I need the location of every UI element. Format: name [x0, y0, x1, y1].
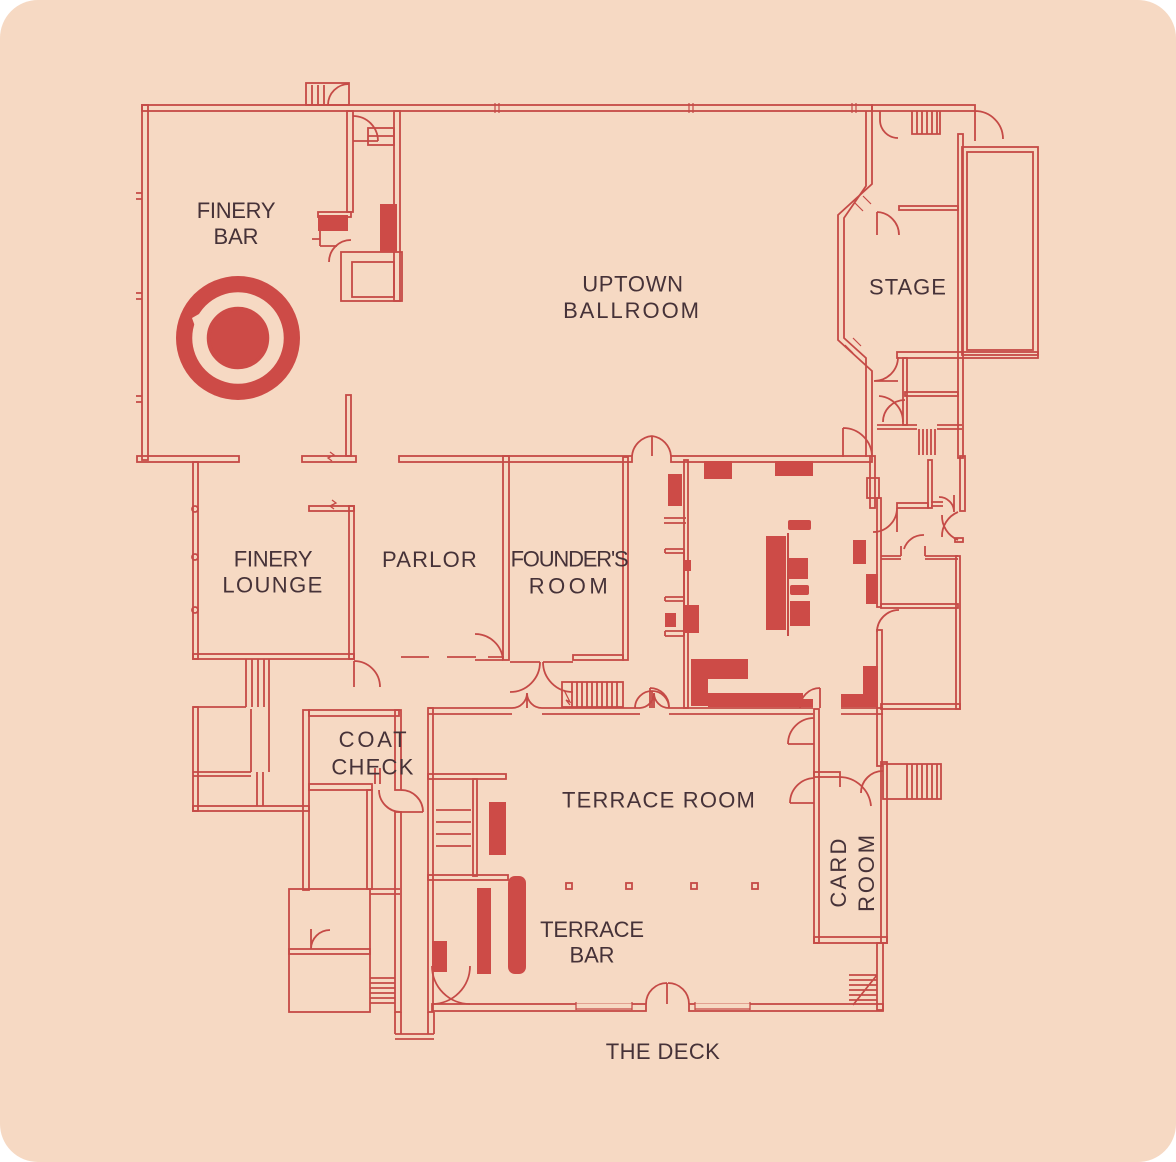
svg-text:TERRACE ROOM: TERRACE ROOM	[562, 788, 756, 813]
svg-text:BAR: BAR	[570, 943, 615, 968]
svg-text:BALLROOM: BALLROOM	[563, 298, 701, 323]
svg-text:FOUNDER'S: FOUNDER'S	[511, 547, 628, 572]
svg-text:CHECK: CHECK	[331, 755, 414, 780]
svg-text:LOUNGE: LOUNGE	[222, 573, 323, 598]
svg-text:TERRACE: TERRACE	[540, 917, 644, 942]
svg-text:COAT: COAT	[339, 727, 410, 752]
svg-text:ROOM: ROOM	[529, 574, 611, 599]
svg-text:CARD: CARD	[826, 836, 851, 907]
svg-text:UPTOWN: UPTOWN	[582, 272, 684, 297]
svg-text:STAGE: STAGE	[869, 275, 947, 300]
svg-text:FINERY: FINERY	[234, 547, 313, 572]
svg-text:PARLOR: PARLOR	[382, 547, 478, 572]
svg-text:THE DECK: THE DECK	[606, 1039, 720, 1064]
svg-text:BAR: BAR	[214, 224, 259, 249]
svg-text:ROOM: ROOM	[854, 832, 879, 912]
svg-text:FINERY: FINERY	[197, 198, 276, 223]
